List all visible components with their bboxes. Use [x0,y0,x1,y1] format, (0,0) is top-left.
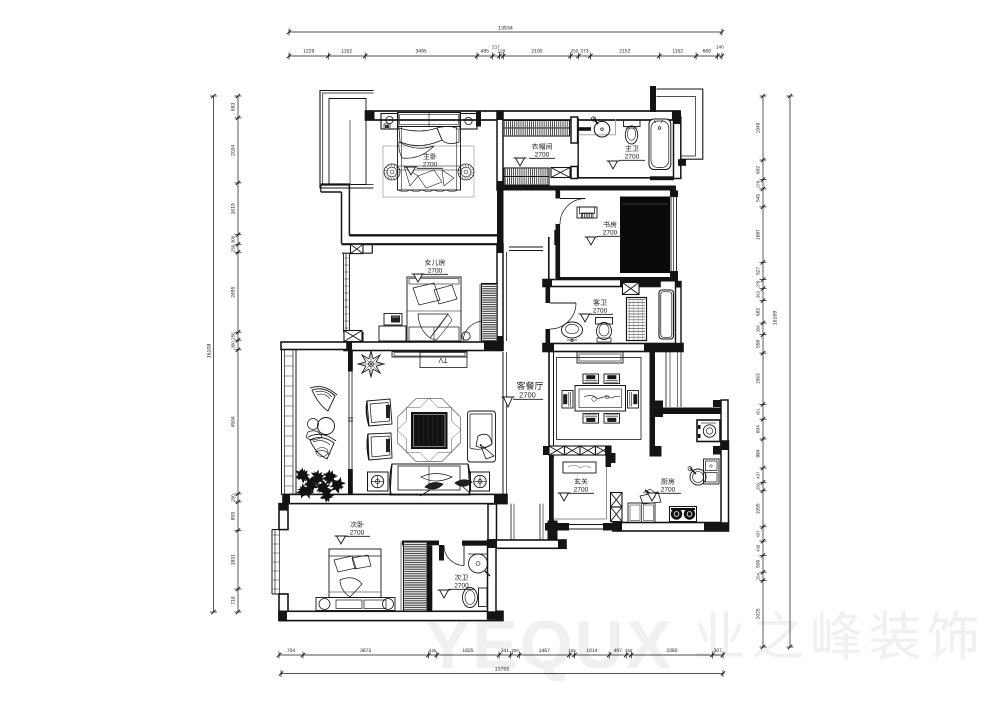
svg-text:1687: 1687 [756,229,762,240]
svg-text:373: 373 [580,49,589,55]
svg-text:女儿房: 女儿房 [425,259,446,267]
svg-text:1014: 1014 [586,648,597,654]
svg-text:3675: 3675 [360,648,371,654]
svg-text:278: 278 [756,180,761,188]
svg-text:2700: 2700 [593,308,608,315]
svg-text:16108: 16108 [207,344,213,359]
svg-text:业之峰装饰: 业之峰装饰 [693,608,986,667]
svg-text:527: 527 [756,267,762,275]
svg-text:2700: 2700 [350,530,365,537]
svg-text:1825: 1825 [462,648,473,654]
svg-text:884: 884 [756,449,762,457]
svg-text:4504: 4504 [231,416,237,427]
svg-text:549: 549 [756,194,762,202]
svg-text:669: 669 [703,49,712,55]
svg-text:1467: 1467 [539,648,550,654]
svg-text:250: 250 [511,648,519,653]
svg-text:1152: 1152 [672,49,683,55]
svg-text:300: 300 [231,235,236,243]
svg-text:150: 150 [625,648,633,653]
svg-text:玄关: 玄关 [574,478,588,486]
svg-text:2700: 2700 [535,152,550,159]
svg-text:13765: 13765 [495,667,510,673]
svg-text:次卧: 次卧 [350,521,364,529]
svg-text:558: 558 [756,340,762,348]
svg-text:2700: 2700 [603,230,618,237]
svg-text:1619: 1619 [231,203,237,214]
svg-text:1152: 1152 [341,49,352,55]
svg-text:358: 358 [756,325,761,333]
svg-text:2034: 2034 [231,145,237,156]
svg-text:2700: 2700 [428,268,443,275]
svg-text:307: 307 [714,648,723,654]
svg-text:TV: TV [438,356,447,363]
svg-text:278: 278 [756,280,761,288]
svg-text:363: 363 [756,290,761,298]
svg-text:2700: 2700 [661,487,676,494]
svg-text:250: 250 [231,244,236,252]
svg-text:1095: 1095 [756,503,762,514]
svg-text:254: 254 [756,572,761,580]
svg-text:13534: 13534 [498,26,513,32]
svg-text:客卫: 客卫 [593,299,607,307]
svg-text:451: 451 [756,408,761,416]
svg-text:3495: 3495 [416,49,427,55]
svg-text:1831: 1831 [231,554,237,565]
svg-text:16169: 16169 [773,311,779,326]
svg-text:2025: 2025 [756,608,762,619]
svg-text:衣帽间: 衣帽间 [532,143,553,151]
svg-text:602: 602 [756,166,762,174]
svg-text:2380: 2380 [666,648,677,654]
svg-text:250: 250 [571,49,579,54]
svg-text:1229: 1229 [303,49,314,55]
svg-text:2700: 2700 [625,154,640,161]
svg-text:2700: 2700 [519,391,536,400]
svg-text:主卧: 主卧 [423,153,437,161]
svg-text:341: 341 [501,648,510,654]
svg-text:437: 437 [756,471,761,479]
svg-text:次卫: 次卫 [455,574,469,582]
svg-text:1949: 1949 [756,122,762,133]
svg-text:厨房: 厨房 [661,478,675,486]
svg-text:主卫: 主卫 [625,145,639,153]
svg-text:120: 120 [498,49,506,54]
svg-text:140: 140 [716,45,724,50]
svg-text:437: 437 [756,530,761,538]
svg-text:2700: 2700 [423,162,438,169]
svg-text:683: 683 [231,103,237,112]
svg-text:245: 245 [429,648,437,653]
svg-text:客餐厅: 客餐厅 [516,381,543,391]
svg-text:300: 300 [231,341,236,349]
svg-text:497: 497 [614,648,623,654]
svg-text:书房: 书房 [603,221,617,229]
svg-text:2700: 2700 [574,487,589,494]
svg-text:682: 682 [756,307,762,315]
svg-text:155: 155 [568,648,576,653]
svg-text:509: 509 [756,559,762,567]
svg-text:718: 718 [231,596,237,605]
svg-text:2700: 2700 [454,583,469,590]
svg-text:2152: 2152 [619,49,630,55]
svg-text:438: 438 [756,544,761,552]
svg-text:258: 258 [756,482,761,490]
svg-text:250: 250 [231,494,236,502]
svg-text:604: 604 [756,425,762,433]
svg-text:2495: 2495 [231,286,237,297]
svg-text:893: 893 [231,512,237,521]
svg-text:485: 485 [481,49,490,55]
svg-text:704: 704 [287,648,296,654]
svg-text:250: 250 [231,332,236,340]
svg-text:2100: 2100 [531,49,542,55]
svg-text:1563: 1563 [756,373,762,384]
